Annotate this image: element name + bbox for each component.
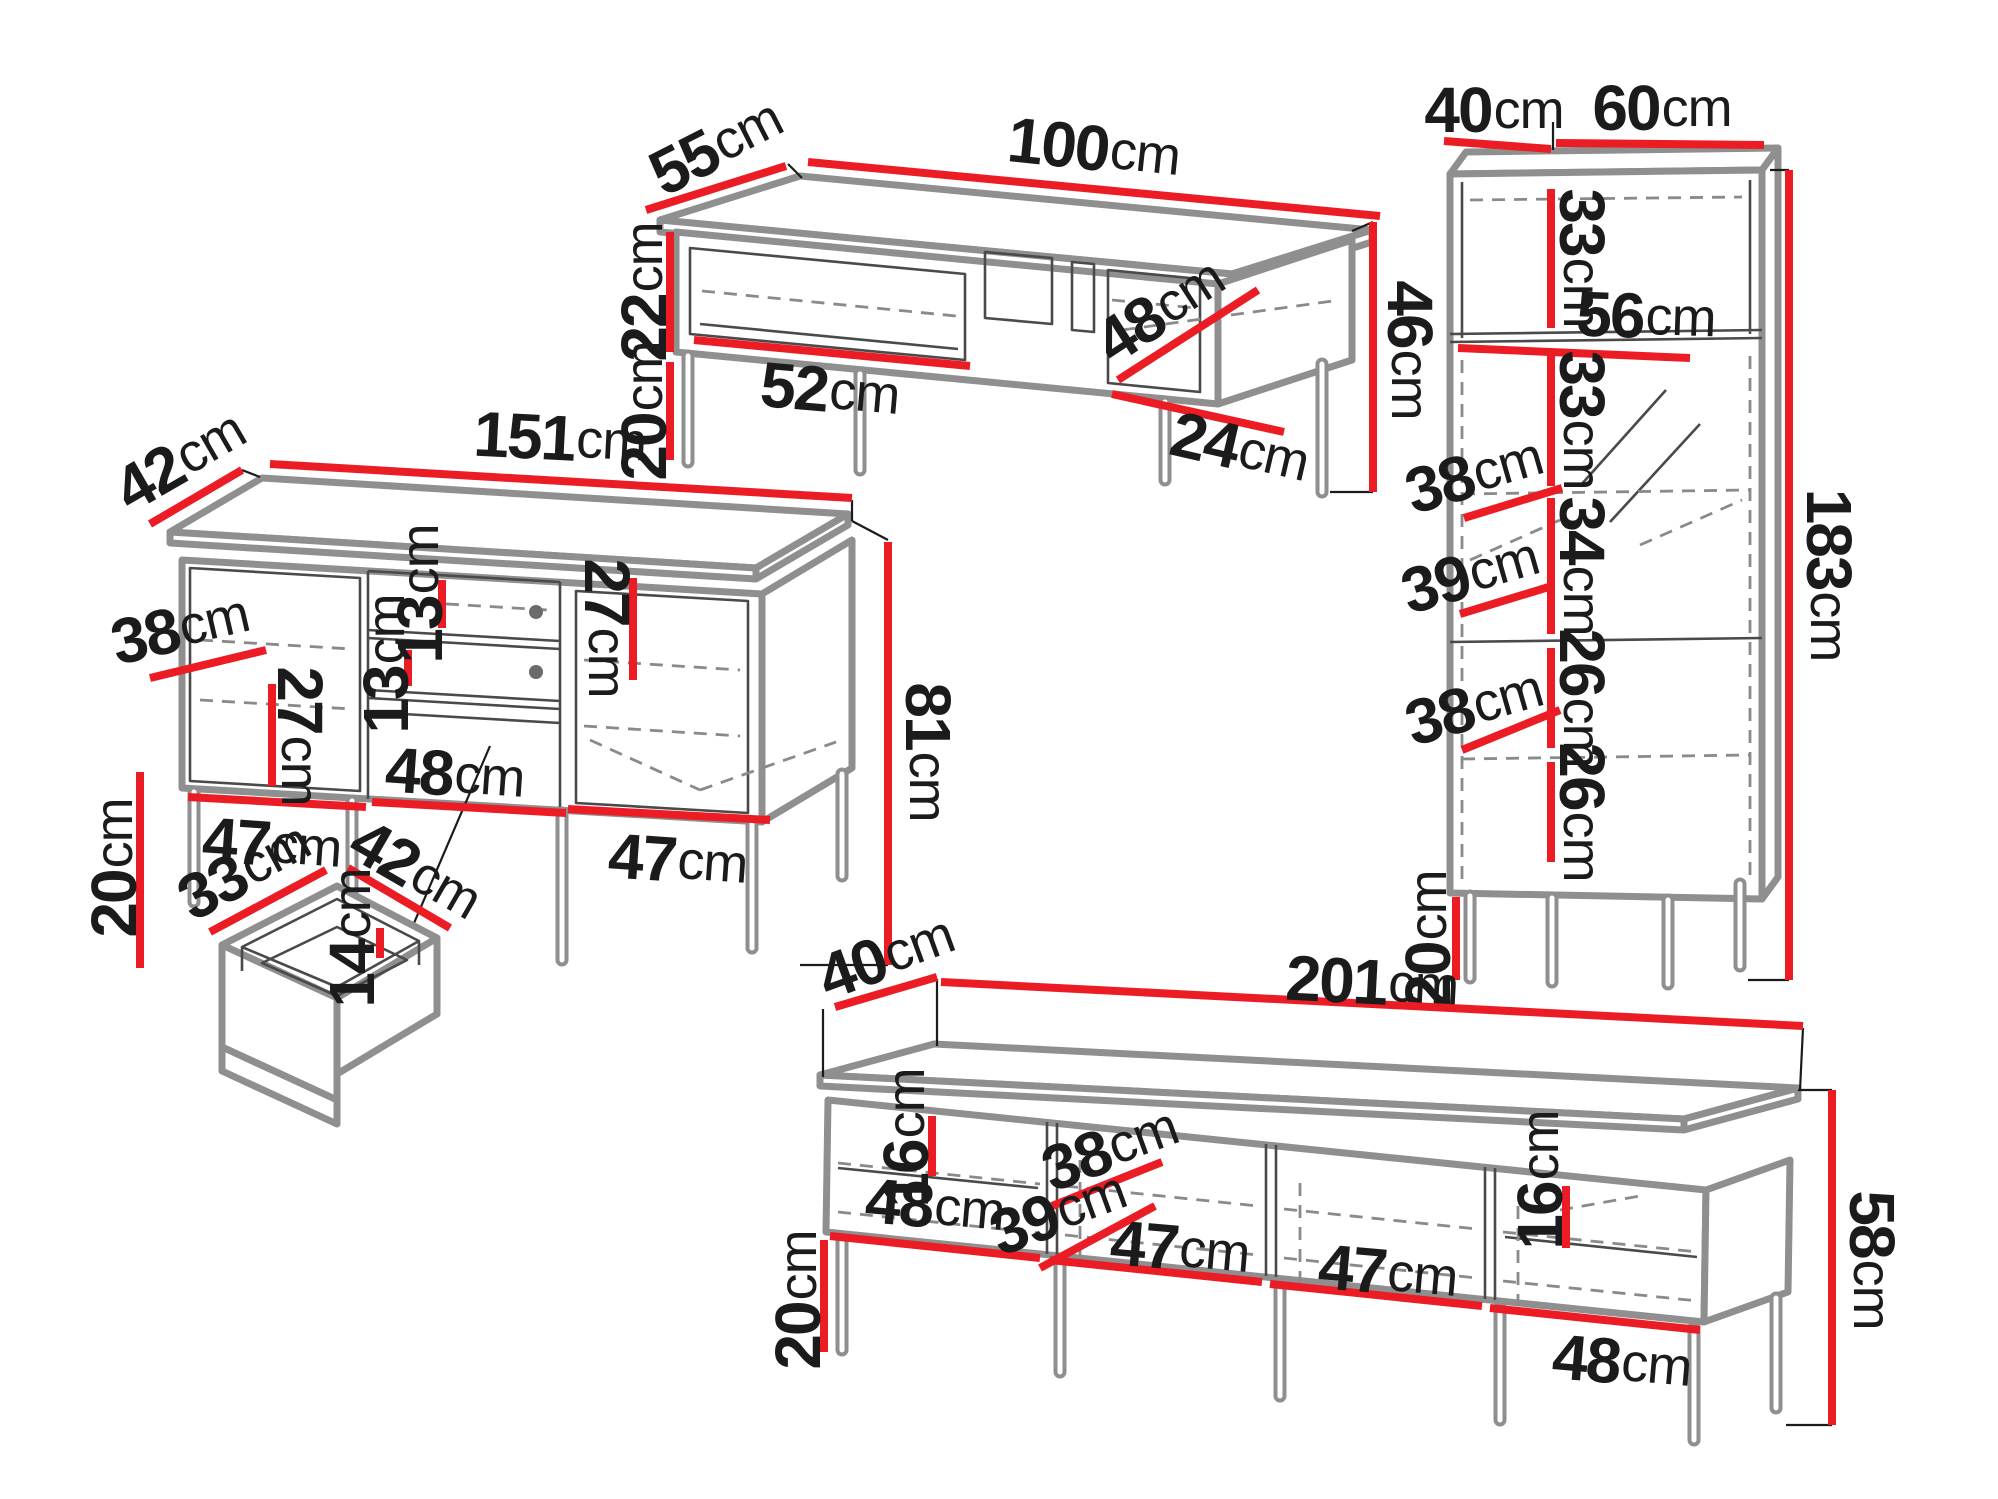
tall-cabinet-width-label: 60cm: [1592, 72, 1731, 144]
coffee-table-carcass-height-label: 22cm: [608, 222, 680, 361]
tv-stand-figure: 40cm 201cm 16cm 38cm 48cm 39cm 47cm 47cm…: [762, 898, 1908, 1440]
dim-value: 56: [1575, 278, 1645, 352]
dim-unit: cm: [1799, 591, 1859, 661]
dim-unit: cm: [270, 736, 330, 806]
dim-value: 33: [1546, 350, 1618, 418]
dim-value: 34: [1546, 496, 1618, 566]
dim-value: 27: [571, 558, 643, 625]
sideboard-lower-shelf-gap-label: 13cm: [350, 594, 422, 733]
diagram-canvas: 55cm 100cm 22cm 20cm 52cm 48cm 24cm 46cm…: [0, 0, 1998, 1499]
dim-unit: cm: [876, 1068, 936, 1138]
dim-value: 26: [1546, 742, 1618, 810]
coffee-table-niche-width-label: 24cm: [1164, 397, 1316, 498]
dim-unit: cm: [1842, 1260, 1902, 1330]
dim-value: 46: [1374, 280, 1446, 348]
sideboard-handle-lower: [529, 665, 543, 679]
tall-cabinet-bottom-section-label: 26cm: [1546, 742, 1618, 881]
dim-unit: cm: [1552, 812, 1612, 882]
dim-value: 52: [758, 348, 832, 426]
dim-unit: cm: [1645, 286, 1717, 348]
tall-cabinet-side-face: [1762, 148, 1778, 899]
dim-unit: cm: [390, 524, 450, 594]
dim-value: 16: [1504, 1182, 1576, 1250]
dim-unit: cm: [575, 409, 648, 473]
tall-cabinet-total-height-label: 183cm: [1793, 489, 1865, 662]
sideboard-leg-height-label: 20cm: [78, 798, 150, 937]
dim-value: 201: [1284, 942, 1389, 1019]
dim-value: 20: [78, 870, 150, 937]
dim-unit: cm: [1662, 78, 1732, 138]
drawer-height-label: 14cm: [316, 868, 388, 1007]
tall-cabinet-display-section-label: 34cm: [1546, 496, 1618, 635]
dim-value: 100: [1004, 103, 1112, 185]
dim-unit: cm: [827, 360, 902, 426]
dim-unit: cm: [1552, 566, 1612, 636]
dim-unit: cm: [356, 594, 416, 664]
dim-unit: cm: [1233, 419, 1315, 493]
dim-unit: cm: [577, 628, 637, 698]
tv-stand-leg-height-label: 20cm: [762, 1230, 834, 1369]
dim-unit: cm: [1510, 1110, 1570, 1180]
dim-unit: cm: [1552, 420, 1612, 490]
dim-value: 151: [472, 398, 577, 475]
tv-stand-total-height-label: 58cm: [1836, 1190, 1908, 1329]
dim-value: 47: [1108, 1206, 1181, 1284]
dim-unit: cm: [1107, 120, 1183, 187]
dim-unit: cm: [676, 830, 750, 895]
dim-unit: cm: [898, 752, 958, 822]
dim-value: 48: [863, 1164, 937, 1242]
tall-cabinet-upper-section-label: 33cm: [1546, 350, 1618, 489]
sideboard-right-door-width-label: 47cm: [606, 819, 750, 901]
dim-unit: cm: [1494, 80, 1564, 140]
dim-unit: cm: [1387, 953, 1460, 1017]
sideboard-handle-upper: [529, 605, 543, 619]
sideboard-right-inner-height-label: 27cm: [571, 558, 643, 697]
dim-value: 47: [1316, 1230, 1389, 1308]
dim-unit: cm: [1177, 1218, 1252, 1284]
dim-value: 48: [1550, 1320, 1624, 1398]
tall-cabinet-figure: 40cm 60cm 33cm 56cm 33cm 38cm 34cm 39cm …: [1392, 72, 1865, 1010]
dim-value: 27: [264, 666, 336, 733]
tv-stand-right-shelf-gap-label: 16cm: [1504, 1110, 1576, 1249]
dim-unit: cm: [768, 1230, 828, 1300]
dim-value: 26: [1546, 628, 1618, 696]
sideboard-left-inner-height-label: 27cm: [264, 666, 336, 805]
dim-unit: cm: [453, 744, 527, 809]
dim-unit: cm: [614, 222, 674, 292]
coffee-table-figure: 55cm 100cm 22cm 20cm 52cm 48cm 24cm 46cm: [608, 82, 1446, 498]
dim-value: 40: [1424, 74, 1491, 146]
dim-unit: cm: [1385, 1242, 1460, 1308]
dim-unit: cm: [1619, 1332, 1694, 1398]
sideboard-total-height-label: 81cm: [892, 682, 964, 821]
tall-cabinet-shelf-width-label: 56cm: [1575, 278, 1717, 355]
dim-value: 60: [1592, 72, 1659, 144]
tv-stand-compartment4-width-label: 48cm: [1550, 1320, 1695, 1404]
dim-value: 183: [1793, 489, 1865, 590]
tall-cabinet-depth-label: 40cm: [1424, 74, 1563, 146]
dim-value: 48: [383, 733, 455, 810]
dim-unit: cm: [84, 798, 144, 868]
dim-value: 14: [316, 938, 388, 1008]
dim-unit: cm: [1380, 350, 1440, 420]
dim-value: 58: [1836, 1190, 1908, 1258]
dim-value: 47: [606, 819, 678, 896]
dim-value: 13: [350, 666, 422, 734]
coffee-table-total-height-label: 46cm: [1374, 280, 1446, 419]
dim-value: 33: [1546, 188, 1618, 256]
dim-unit: cm: [322, 868, 382, 938]
furniture-dimension-diagram: 55cm 100cm 22cm 20cm 52cm 48cm 24cm 46cm…: [0, 0, 1998, 1499]
dim-value: 20: [762, 1302, 834, 1369]
dim-unit: cm: [1398, 870, 1458, 940]
dim-value: 81: [892, 682, 964, 750]
dim-unit: cm: [614, 341, 674, 411]
